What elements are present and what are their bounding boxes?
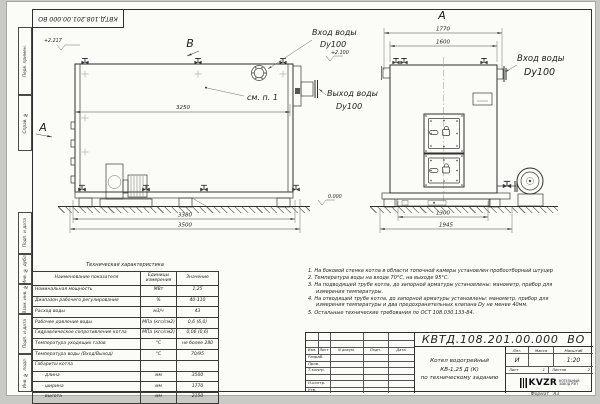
logo-subtext: КОТЕЛЬНЫЙ ЗАВОД РЭП (559, 380, 579, 387)
see-item-note: см. п. 1 (247, 93, 278, 102)
inlet-dn-front: Dy100 (524, 67, 555, 78)
note-item: 4. На отводящей трубе котла, до запорной… (308, 296, 568, 309)
table-row: Температура воды (Вход/Выход)°С70/95 (33, 350, 219, 361)
scanned-boiler-drawing: { "doc": { "stamp_rotated": "КВТД.108.20… (0, 0, 600, 400)
top-valve-icon (81, 59, 88, 65)
logo-subtext-line2: ЗАВОД РЭП (559, 383, 579, 387)
note-item: 5. Остальные технические требования по О… (308, 310, 568, 317)
lit-value: И (506, 354, 529, 367)
top-valve-icon (400, 59, 407, 65)
param-unit: м3/ч (141, 307, 177, 318)
logo-bars-icon (520, 378, 527, 388)
manufacturer-logo: KVZR КОТЕЛЬНЫЙ ЗАВОД РЭП (506, 374, 593, 394)
dim-3250: 3250 (176, 105, 190, 111)
param-unit: % (141, 296, 177, 307)
elevation-value: +2.217 (44, 38, 62, 44)
top-valve-icon (194, 59, 201, 65)
technical-notes: 1. На боковой стенке котла в области топ… (308, 268, 568, 317)
param-name: Габариты котла (33, 360, 141, 371)
view-a-letter: A (38, 121, 47, 134)
scale-header: Масштаб (554, 347, 593, 354)
dim-1770: 1770 (436, 27, 450, 33)
param-name: - высота (33, 392, 141, 403)
mass-value (529, 354, 554, 367)
param-name: - ширина (33, 382, 141, 393)
boiler-body-side (75, 64, 293, 192)
param-name: Температура уходящих газов (33, 339, 141, 350)
format-label: Формат (531, 392, 549, 397)
outlet-dn: Dy100 (336, 102, 362, 111)
drawing-name-line2: КВ-1,25 Д (К) (414, 366, 505, 375)
table-row: Гидравлическое сопротивление котлаМПа (к… (33, 328, 219, 339)
table-row: - ширинамм1770 (33, 382, 219, 393)
outlet-label: Выход воды (327, 89, 378, 98)
note-item: 1. На боковой стенке котла в области топ… (308, 268, 568, 275)
view-a-arrow (36, 134, 52, 137)
format-note: Формат А3 (500, 392, 590, 397)
inlet-dn: Dy100 (320, 40, 346, 49)
skid-rail-front (382, 193, 510, 199)
tech-table-header: Наименование показателя Единицы измерени… (33, 272, 219, 286)
mass-header: Масса (529, 347, 554, 354)
col-data: Дата (388, 347, 414, 354)
elevation-mark (326, 56, 343, 61)
lit-header: Лит. (506, 347, 529, 354)
param-value: 0,6 (6,0) (177, 318, 219, 329)
col-ndokum: N докум. (330, 347, 363, 354)
tech-table-title: Техническая характеристика (32, 262, 218, 268)
ground-hatch-front (370, 206, 558, 213)
elevation-zero: 0.000 (328, 194, 342, 200)
param-value: не более 280 (177, 339, 219, 350)
dim-1945: 1945 (439, 223, 453, 229)
param-unit: мм (141, 371, 177, 382)
dim-3380: 3380 (178, 213, 192, 219)
param-unit: МПа (кгс/см2) (141, 328, 177, 339)
col-header: Значение (177, 272, 219, 286)
param-value: 0,06 (0,6) (177, 328, 219, 339)
table-row: Температура уходящих газов°Сне более 280 (33, 339, 219, 350)
left-wall-brackets (71, 122, 75, 183)
param-unit: МВт (141, 286, 177, 297)
param-name: Рабочее давление воды (33, 318, 141, 329)
table-row: Расход водым3/ч43 (33, 307, 219, 318)
side-view: B A +2.217 Вход воды Dy100 +2.100 Выход … (36, 28, 378, 233)
param-unit: мм (141, 392, 177, 403)
param-value: 70/95 (177, 350, 219, 361)
param-value: 3500 (177, 371, 219, 382)
param-value: 1770 (177, 382, 219, 393)
front-view-title: A (437, 9, 446, 22)
drain-valve-icon (78, 185, 86, 191)
note-item: 3. На подводящей трубе котла, до запорно… (308, 282, 568, 295)
sheets-label: Листов (552, 367, 566, 373)
table-row: Номинальная мощностьМВт1,25 (33, 286, 219, 297)
col-header: Наименование показателя (33, 272, 141, 286)
upper-access-door (424, 114, 464, 153)
row-utv: Утв. (307, 387, 330, 394)
skid-rail-side (75, 192, 293, 198)
front-view: A 1770 1600 1300 1945 Вход воды Dy100 (380, 9, 565, 233)
note-item: 2. Температура воды на входе 70°С, на вы… (308, 275, 568, 282)
col-list: Лист (318, 347, 330, 354)
drawing-name-line3: по техническому заданию (414, 374, 505, 383)
table-row: - длинамм3500 (33, 371, 219, 382)
param-value (177, 360, 219, 371)
top-valve-icon (392, 59, 399, 65)
table-row: Габариты котла (33, 360, 219, 371)
param-name: Расход воды (33, 307, 141, 318)
param-name: - длина (33, 371, 141, 382)
sheet-value: 1 (543, 367, 545, 373)
dim-1600: 1600 (436, 40, 450, 46)
table-row: - высотамм2150 (33, 392, 219, 403)
ground-hatch-side (58, 206, 310, 213)
nameplate (473, 93, 492, 105)
view-b-letter: B (186, 37, 194, 50)
param-unit: МПа (кгс/см2) (141, 318, 177, 329)
title-block: Изм. Лист N докум. Подп. Дата Разраб. Пр… (305, 332, 592, 392)
col-izm: Изм. (306, 347, 318, 354)
tech-table: Наименование показателя Единицы измерени… (32, 271, 219, 404)
scale-value: 1:20 (554, 354, 593, 367)
table-row: Диапазон рабочего регулирования%40-110 (33, 296, 219, 307)
water-inlet-flange (252, 66, 267, 81)
param-unit (141, 360, 177, 371)
drawing-name: Котел водогрейный КВ-1,25 Д (К) по техни… (414, 347, 506, 393)
doc-number: КВТД.108.201.00.000 ВО (414, 333, 593, 347)
param-value: 43 (177, 307, 219, 318)
drain-valve-icon (142, 185, 150, 191)
inlet-stub-front (497, 69, 503, 79)
param-name: Гидравлическое сопротивление котла (33, 328, 141, 339)
top-valve-icon (480, 59, 487, 65)
dim-3500: 3500 (178, 223, 192, 229)
param-value: 40-110 (177, 296, 219, 307)
col-podp: Подп. (363, 347, 388, 354)
param-unit: °С (141, 339, 177, 350)
elevation-mark (318, 200, 335, 205)
format-value: А3 (553, 392, 559, 397)
row-tkontr: Т.контр. (307, 367, 330, 374)
drawing-name-line1: Котел водогрейный (414, 357, 505, 366)
param-name: Номинальная мощность (33, 286, 141, 297)
view-b-arrow (187, 51, 199, 56)
logo-text: KVZR (529, 378, 558, 388)
col-header: Единицы измерения (141, 272, 177, 286)
param-name: Диапазон рабочего регулирования (33, 296, 141, 307)
lower-access-door (424, 154, 464, 187)
param-name: Температура воды (Вход/Выход) (33, 350, 141, 361)
inlet-label: Вход воды (312, 28, 357, 37)
param-unit: °С (141, 350, 177, 361)
param-value: 2150 (177, 392, 219, 403)
param-unit: мм (141, 382, 177, 393)
elevation-mark (57, 45, 80, 50)
elevation-value: +2.100 (331, 50, 349, 56)
param-value: 1,25 (177, 286, 219, 297)
table-row: Рабочее давление водыМПа (кгс/см2)0,6 (6… (33, 318, 219, 329)
inlet-label-front: Вход воды (517, 54, 565, 64)
sheets-value: 2 (588, 367, 590, 373)
sheet-label: Лист (509, 367, 519, 373)
drain-valve-icon (200, 185, 208, 191)
water-outlet-pipe (293, 66, 318, 106)
fan-valve-icon (503, 181, 511, 188)
